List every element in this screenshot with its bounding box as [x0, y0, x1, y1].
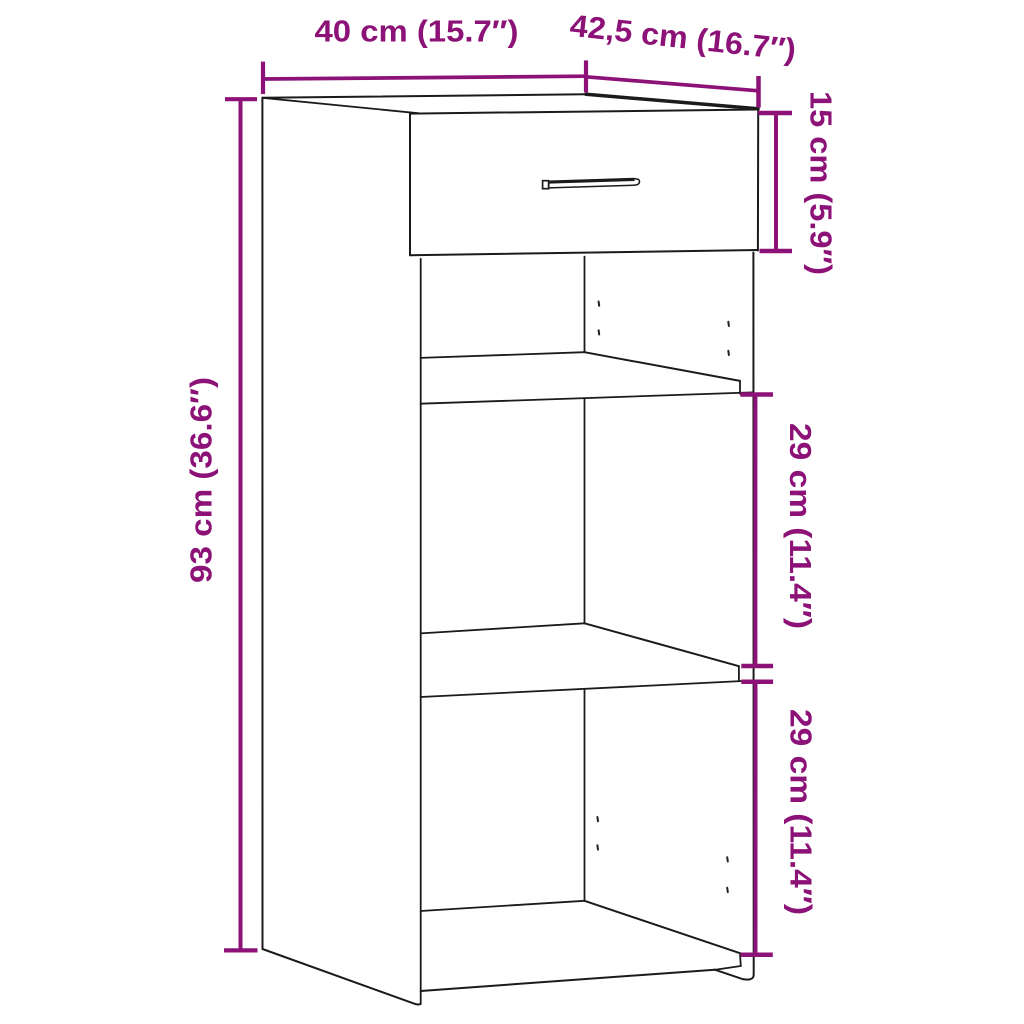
svg-text:40 cm (15.7″): 40 cm (15.7″) — [315, 13, 519, 48]
svg-text:93 cm (36.6″): 93 cm (36.6″) — [184, 377, 219, 583]
svg-text:29 cm (11.4″): 29 cm (11.4″) — [783, 423, 818, 629]
svg-text:15 cm (5.9″): 15 cm (5.9″) — [804, 91, 839, 275]
svg-text:29 cm (11.4″): 29 cm (11.4″) — [784, 709, 819, 915]
